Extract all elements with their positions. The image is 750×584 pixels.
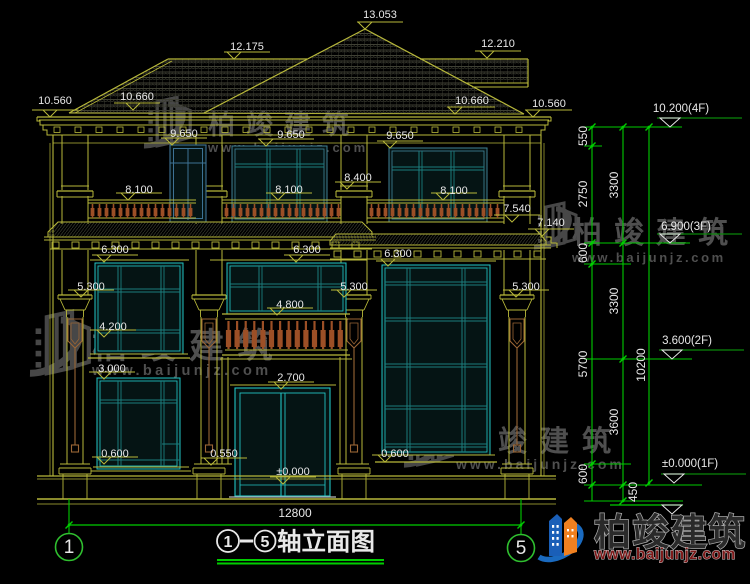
svg-text:2.700: 2.700 (277, 372, 305, 384)
svg-text:3.600(2F): 3.600(2F) (662, 335, 712, 347)
svg-text:2750: 2750 (576, 180, 590, 207)
svg-text:600: 600 (576, 243, 590, 263)
svg-text:8.100: 8.100 (440, 185, 468, 197)
svg-text:12.175: 12.175 (230, 41, 264, 53)
svg-text:6.300: 6.300 (101, 244, 129, 256)
svg-text:13.053: 13.053 (363, 9, 397, 21)
svg-text:5.300: 5.300 (512, 281, 540, 293)
svg-text:www.baijunjz.com: www.baijunjz.com (593, 546, 736, 563)
svg-text:7.540: 7.540 (503, 203, 531, 215)
svg-text:600: 600 (576, 464, 590, 484)
svg-text:10.200(4F): 10.200(4F) (653, 103, 709, 115)
svg-text:柏竣建筑: 柏竣建筑 (572, 216, 740, 250)
svg-text:6.300: 6.300 (293, 244, 321, 256)
svg-text:1: 1 (64, 537, 75, 558)
svg-text:3.000: 3.000 (98, 363, 126, 375)
svg-text:10.660: 10.660 (120, 91, 154, 103)
svg-text:8.100: 8.100 (275, 184, 303, 196)
svg-text:9.650: 9.650 (170, 128, 198, 140)
svg-text:±0.000(1F): ±0.000(1F) (662, 458, 718, 470)
svg-text:3300: 3300 (607, 287, 621, 314)
svg-text:1: 1 (224, 534, 233, 551)
svg-text:9.650: 9.650 (386, 130, 414, 142)
svg-text:10200: 10200 (634, 348, 648, 382)
svg-text:0.600: 0.600 (381, 448, 409, 460)
svg-text:550: 550 (576, 126, 590, 146)
svg-text:10.560: 10.560 (532, 98, 566, 110)
svg-text:0.550: 0.550 (210, 448, 238, 460)
svg-text:3600: 3600 (607, 408, 621, 435)
svg-text:6.300: 6.300 (384, 248, 412, 260)
svg-text:7.140: 7.140 (537, 217, 565, 229)
svg-text:12.210: 12.210 (481, 38, 515, 50)
svg-text:10.560: 10.560 (38, 95, 72, 107)
svg-text:6.900(3F): 6.900(3F) (661, 221, 711, 233)
svg-text:5700: 5700 (576, 350, 590, 377)
svg-text:8.100: 8.100 (125, 184, 153, 196)
svg-text:8.400: 8.400 (344, 172, 372, 184)
svg-text:5: 5 (261, 534, 270, 551)
svg-text:5.300: 5.300 (77, 281, 105, 293)
svg-text:4.800: 4.800 (276, 299, 304, 311)
svg-text:0.600: 0.600 (101, 448, 129, 460)
svg-text:轴立面图: 轴立面图 (277, 527, 375, 556)
svg-text:4.200: 4.200 (99, 321, 127, 333)
svg-text:±0.000: ±0.000 (276, 466, 310, 478)
svg-text:5.300: 5.300 (340, 281, 368, 293)
svg-text:12800: 12800 (278, 506, 312, 520)
svg-text:3300: 3300 (607, 171, 621, 198)
svg-text:450: 450 (626, 482, 640, 502)
svg-text:9.650: 9.650 (277, 129, 305, 141)
svg-text:5: 5 (516, 538, 527, 559)
svg-text:10.660: 10.660 (455, 95, 489, 107)
